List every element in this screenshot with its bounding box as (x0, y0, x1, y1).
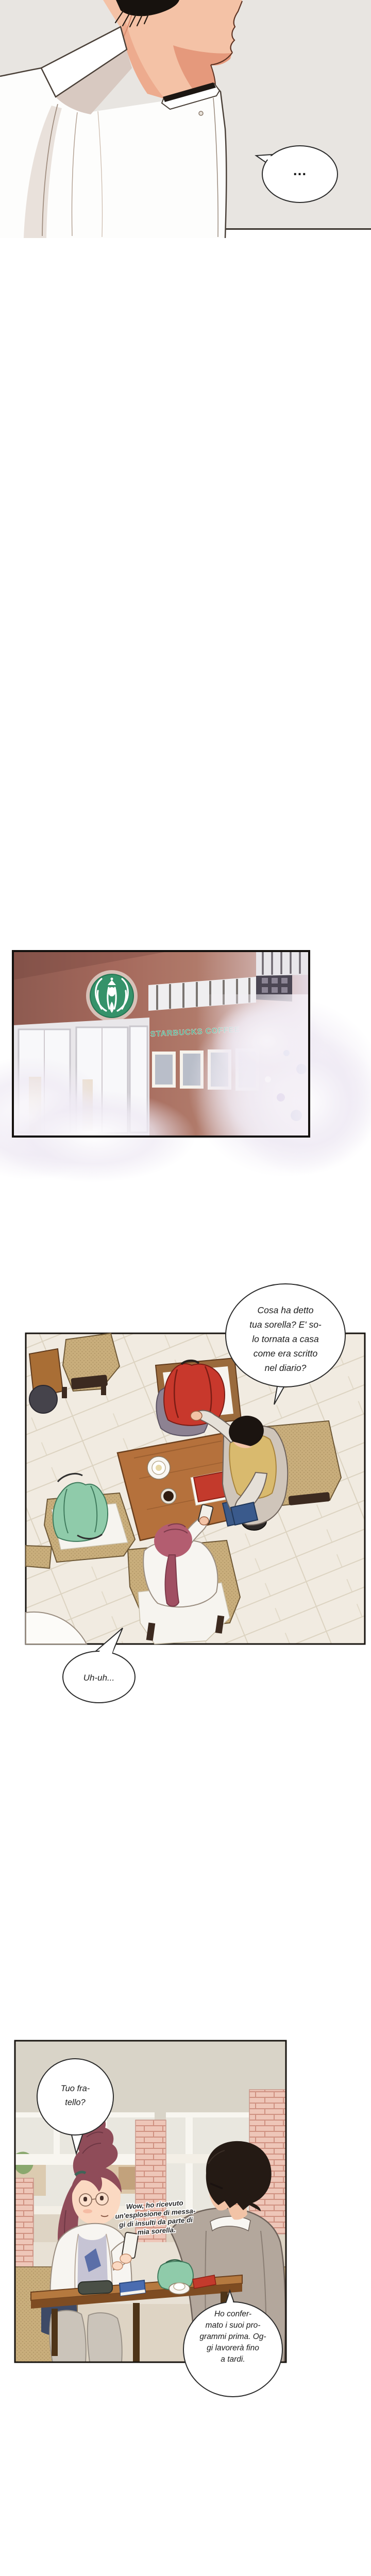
svg-text:tello?: tello? (65, 2098, 86, 2107)
svg-text:a tardi.: a tardi. (221, 2355, 245, 2364)
svg-text:gi lavorerà fino: gi lavorerà fino (207, 2344, 259, 2352)
svg-text:Cosa ha detto: Cosa ha detto (258, 1305, 314, 1315)
svg-text:Tuo fra-: Tuo fra- (61, 2084, 90, 2093)
svg-text:lo tornata a casa: lo tornata a casa (252, 1334, 319, 1344)
svg-text:nel diario?: nel diario? (265, 1363, 307, 1373)
svg-text:...: ... (293, 162, 307, 178)
svg-text:come era scritto: come era scritto (254, 1348, 318, 1359)
svg-text:mato i suoi pro-: mato i suoi pro- (206, 2321, 261, 2330)
svg-text:grammi prima. Og-: grammi prima. Og- (199, 2332, 266, 2341)
svg-text:tua sorella? E' so-: tua sorella? E' so- (249, 1319, 322, 1330)
svg-text:Uh-uh...: Uh-uh... (83, 1673, 114, 1683)
svg-text:Ho confer-: Ho confer- (214, 2310, 251, 2318)
